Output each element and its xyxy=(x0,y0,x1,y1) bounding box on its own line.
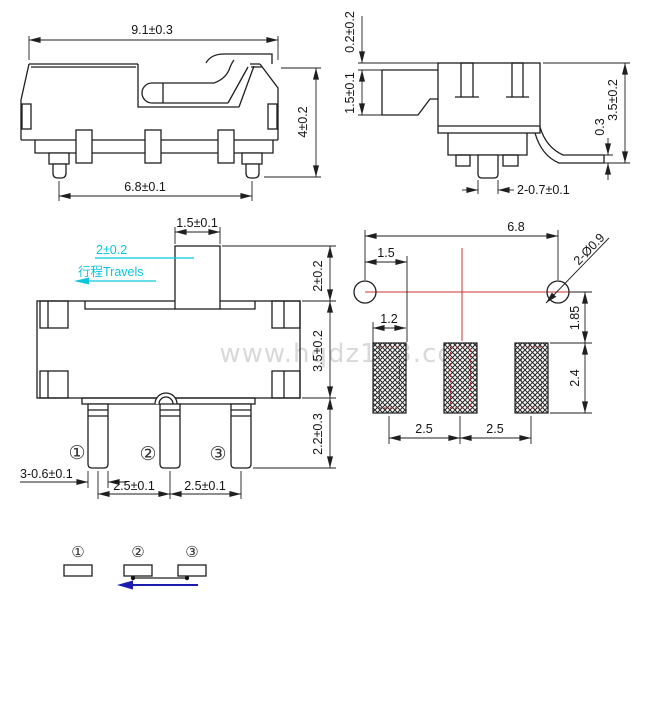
travel-label: 行程Travels xyxy=(78,264,144,279)
front-view-outline-line xyxy=(40,301,68,328)
schematic-pin-3-label: ③ xyxy=(185,543,198,561)
slider-knob xyxy=(206,54,272,64)
dim-side-pin-width: 2-0.7±0.1 xyxy=(517,183,570,197)
dim-foot-thickness: 0.3 xyxy=(593,118,607,135)
side-view-dimensions-line xyxy=(478,180,498,194)
pin-1 xyxy=(88,404,108,468)
dim-top-height: 4±0.2 xyxy=(296,106,310,137)
side-view-outline-line xyxy=(448,133,527,155)
drawing-sheet: www.hqdz123.com 9.1±0.3 4±0.2 xyxy=(0,0,649,707)
dim-pitch-left: 2.5±0.1 xyxy=(113,479,155,493)
dim-actuator-height: 2±0.2 xyxy=(311,260,325,291)
actuator xyxy=(175,246,220,309)
watermark-text: www.hqdz123.com xyxy=(219,339,480,369)
lever xyxy=(382,70,438,115)
top-view-left-tab xyxy=(22,104,31,129)
slide-direction-arrow xyxy=(117,581,133,590)
dim-side-height: 3.5±0.2 xyxy=(606,79,620,121)
schematic-contact-2 xyxy=(124,565,152,576)
pcb-layout: 6.8 1.5 2-Ø0.9 1.85 1.2 2.4 2.5 2.5 xyxy=(354,220,609,444)
pad-3 xyxy=(515,343,548,413)
dim-lever-height: 1.5±0.1 xyxy=(343,72,357,114)
pad-2 xyxy=(444,343,477,413)
side-pin xyxy=(503,155,518,166)
terminal-tab xyxy=(145,130,161,163)
front-view-outline-line xyxy=(85,301,255,309)
contact-dot xyxy=(185,576,189,580)
side-center-pin xyxy=(478,155,498,178)
pin-2 xyxy=(160,404,180,468)
front-view-outline-line xyxy=(272,371,300,398)
dim-pad-width: 1.2 xyxy=(380,312,397,326)
schematic-contact-3 xyxy=(178,565,206,576)
mount-foot xyxy=(49,153,69,164)
side-view: 0.2±0.2 1.5±0.1 3.5±0.2 0.3 2-0.7±0.1 xyxy=(343,11,630,197)
mount-foot xyxy=(242,153,262,164)
schematic-contact-1 xyxy=(64,565,92,576)
top-view-dimensions-line xyxy=(264,68,321,177)
slide-switch-drawing: www.hqdz123.com 9.1±0.3 4±0.2 xyxy=(0,0,649,707)
slider-slot xyxy=(138,60,254,107)
pin-2-label: ② xyxy=(139,443,156,465)
dim-pad-offset: 1.85 xyxy=(568,306,582,330)
terminal-tab xyxy=(76,130,92,163)
terminal-tab xyxy=(218,130,234,163)
schematic-pin-2-label: ② xyxy=(131,543,144,561)
dim-hole-to-pad: 1.5 xyxy=(377,246,394,260)
mount-foot xyxy=(246,164,259,178)
dim-top-width: 9.1±0.3 xyxy=(131,23,173,37)
dim-hole-span: 6.8 xyxy=(507,220,524,234)
pin-3 xyxy=(231,404,251,468)
front-view-outline-line xyxy=(272,301,300,328)
pin-1-label: ① xyxy=(68,442,85,464)
dim-holes: 2-Ø0.9 xyxy=(571,231,608,268)
mount-foot xyxy=(53,164,66,178)
side-view-outline-line xyxy=(461,63,473,97)
side-view-outline xyxy=(382,63,604,178)
top-view-right-tab xyxy=(268,104,277,129)
side-body xyxy=(438,63,540,133)
dim-feet-span: 6.8±0.1 xyxy=(124,180,166,194)
solder-pads xyxy=(373,343,548,413)
pad-1 xyxy=(373,343,406,413)
dim-front-body-height: 3.5±0.2 xyxy=(311,330,325,372)
dim-pcb-pitch-left: 2.5 xyxy=(415,422,432,436)
pin-3-label: ③ xyxy=(209,443,226,465)
side-view-outline-line xyxy=(512,63,523,97)
front-view-outline-line xyxy=(40,371,68,398)
dim-pcb-pitch-right: 2.5 xyxy=(486,422,503,436)
position-schematic: ① ② ③ xyxy=(64,543,206,590)
top-view: 9.1±0.3 4±0.2 6.8±0.1 xyxy=(21,23,321,201)
side-view-dimensions-line xyxy=(358,63,438,115)
center-dome xyxy=(155,393,177,404)
top-view-outline-line xyxy=(21,64,278,140)
side-pin xyxy=(456,155,470,166)
dim-pin-width: 3-0.6±0.1 xyxy=(20,467,73,481)
dim-actuator-width: 1.5±0.1 xyxy=(176,216,218,230)
dim-pad-height: 2.4 xyxy=(568,369,582,386)
travel-value: 2±0.2 xyxy=(96,243,127,257)
dim-pin-length: 2.2±0.3 xyxy=(311,413,325,455)
contact-dot xyxy=(131,576,135,580)
schematic-pin-1-label: ① xyxy=(71,543,84,561)
pcb-dimensions-line xyxy=(389,416,531,444)
dim-pitch-right: 2.5±0.1 xyxy=(184,479,226,493)
top-view-outline xyxy=(21,54,278,178)
dim-top-gap: 0.2±0.2 xyxy=(343,11,357,53)
